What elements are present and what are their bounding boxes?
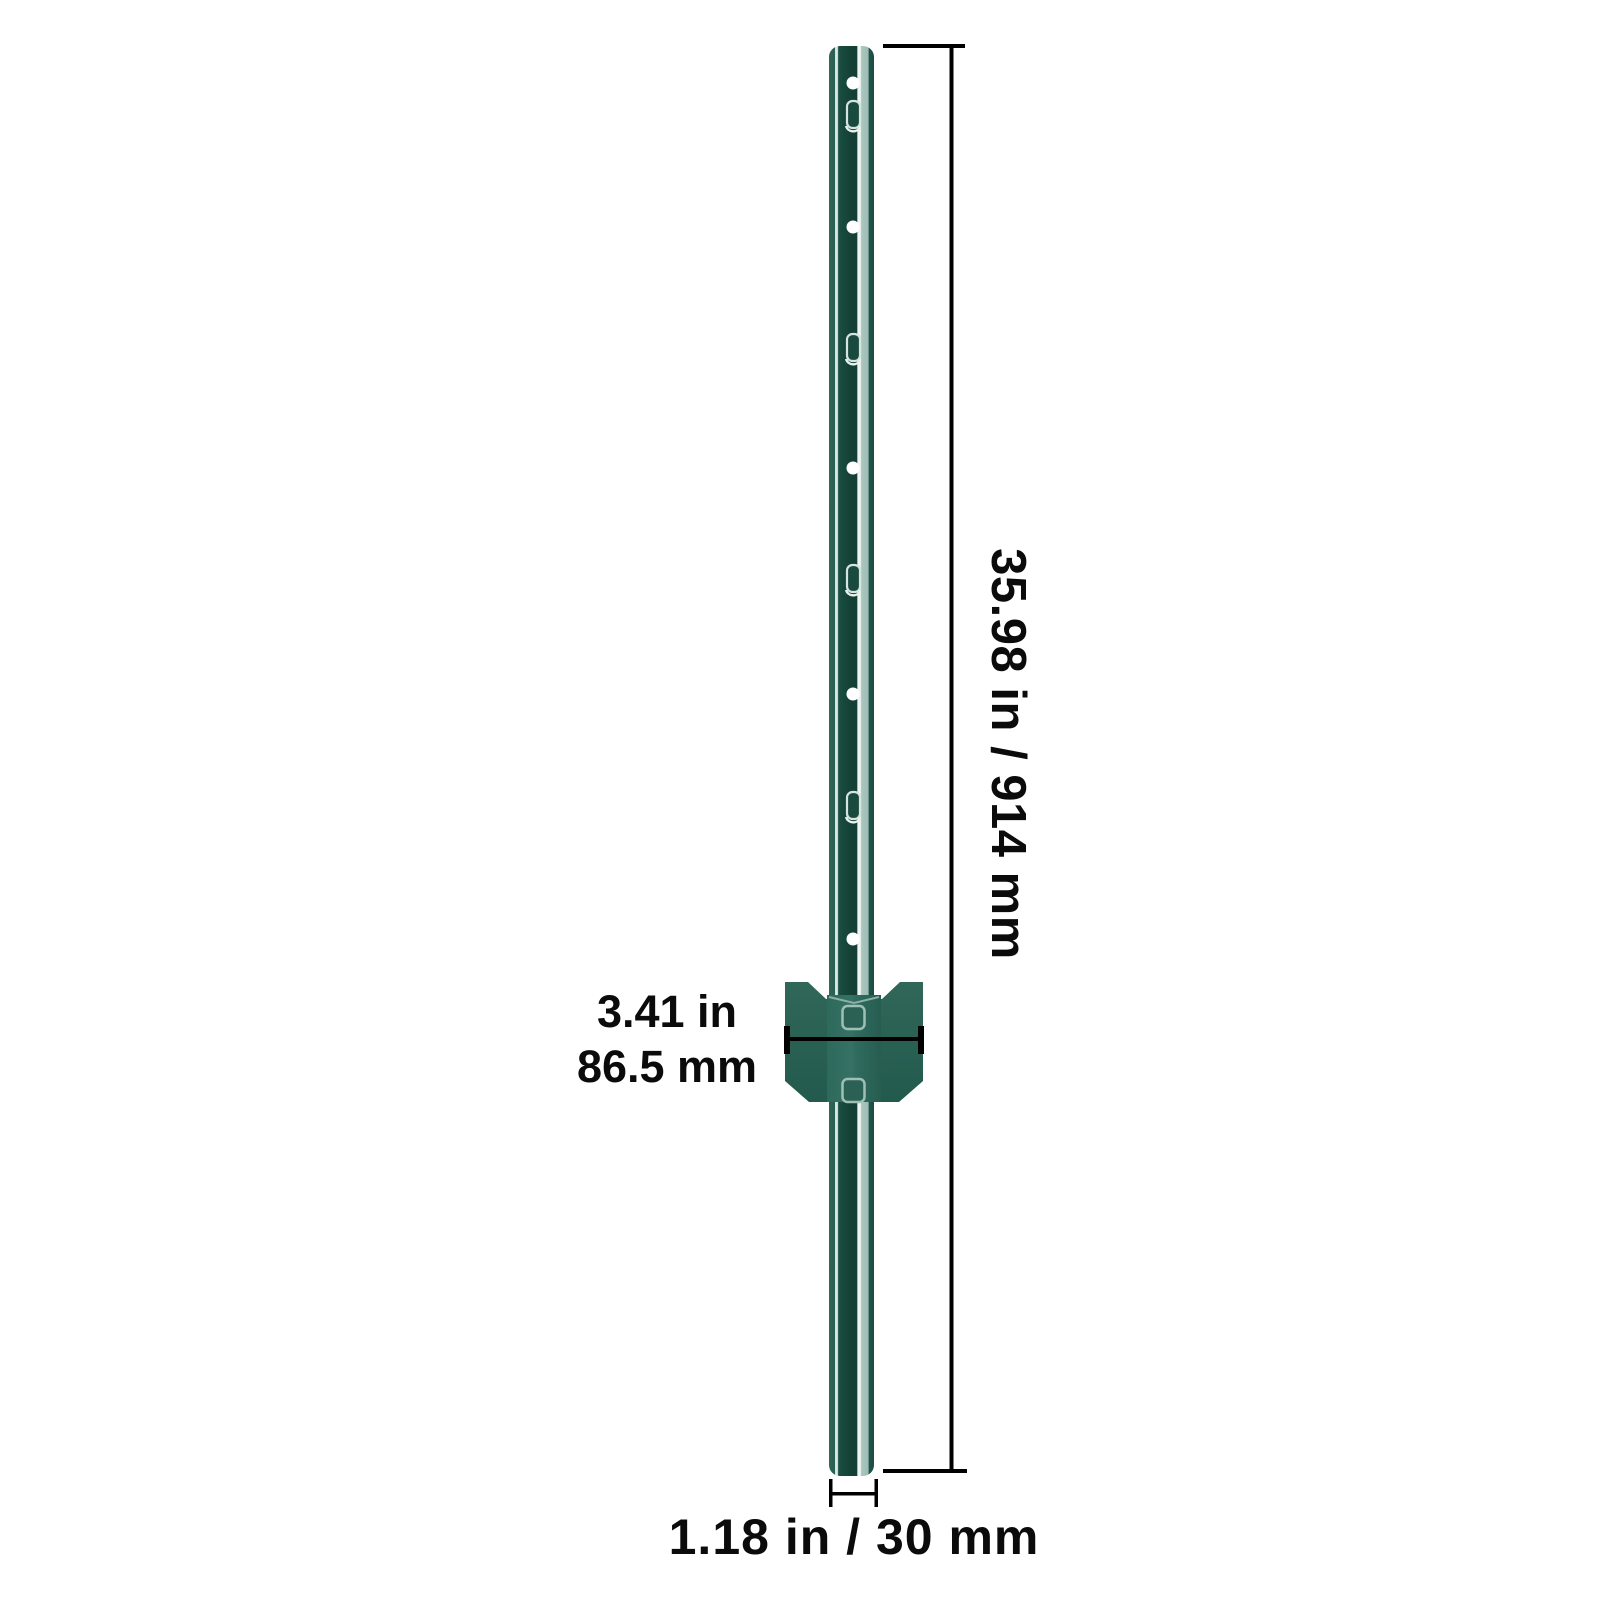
u-post-body: [829, 46, 874, 1476]
plate-dim-right-tick: [918, 1026, 924, 1054]
post-width-dimension: [829, 1479, 878, 1507]
height-dimension: [883, 44, 967, 1473]
post-slot-hole: [847, 565, 860, 592]
post-slot-hole: [847, 101, 860, 128]
plate-slot: [843, 1079, 865, 1102]
plate-width-label-line1: 3.41 in: [577, 985, 757, 1040]
height-dim-bottom-tick: [883, 1469, 967, 1473]
post-width-right-tick: [875, 1479, 879, 1507]
illustration-canvas: [0, 0, 1600, 1600]
height-dimension-label: 35.98 in / 914 mm: [980, 548, 1036, 960]
post-width-line: [830, 1492, 877, 1496]
plate-width-label-line2: 86.5 mm: [577, 1040, 757, 1095]
plate-dim-line: [786, 1037, 922, 1041]
post-round-hole: [847, 933, 860, 946]
anchor-plate: [785, 982, 923, 1102]
post-slot-hole: [847, 792, 860, 819]
post-round-hole: [847, 462, 860, 475]
height-dim-line: [950, 46, 954, 1471]
plate-slot: [843, 1006, 865, 1029]
plate-width-dimension-label: 3.41 in 86.5 mm: [577, 985, 757, 1095]
plate-left-wing: [785, 982, 831, 1102]
plate-right-wing: [877, 982, 923, 1102]
post-width-dimension-label: 1.18 in / 30 mm: [669, 1508, 1040, 1566]
product-diagram: 35.98 in / 914 mm 3.41 in 86.5 mm 1.18 i…: [0, 0, 1600, 1600]
post-round-hole: [847, 77, 860, 90]
post-round-hole: [847, 688, 860, 701]
post-slot-hole: [847, 334, 860, 361]
post-round-hole: [847, 221, 860, 234]
